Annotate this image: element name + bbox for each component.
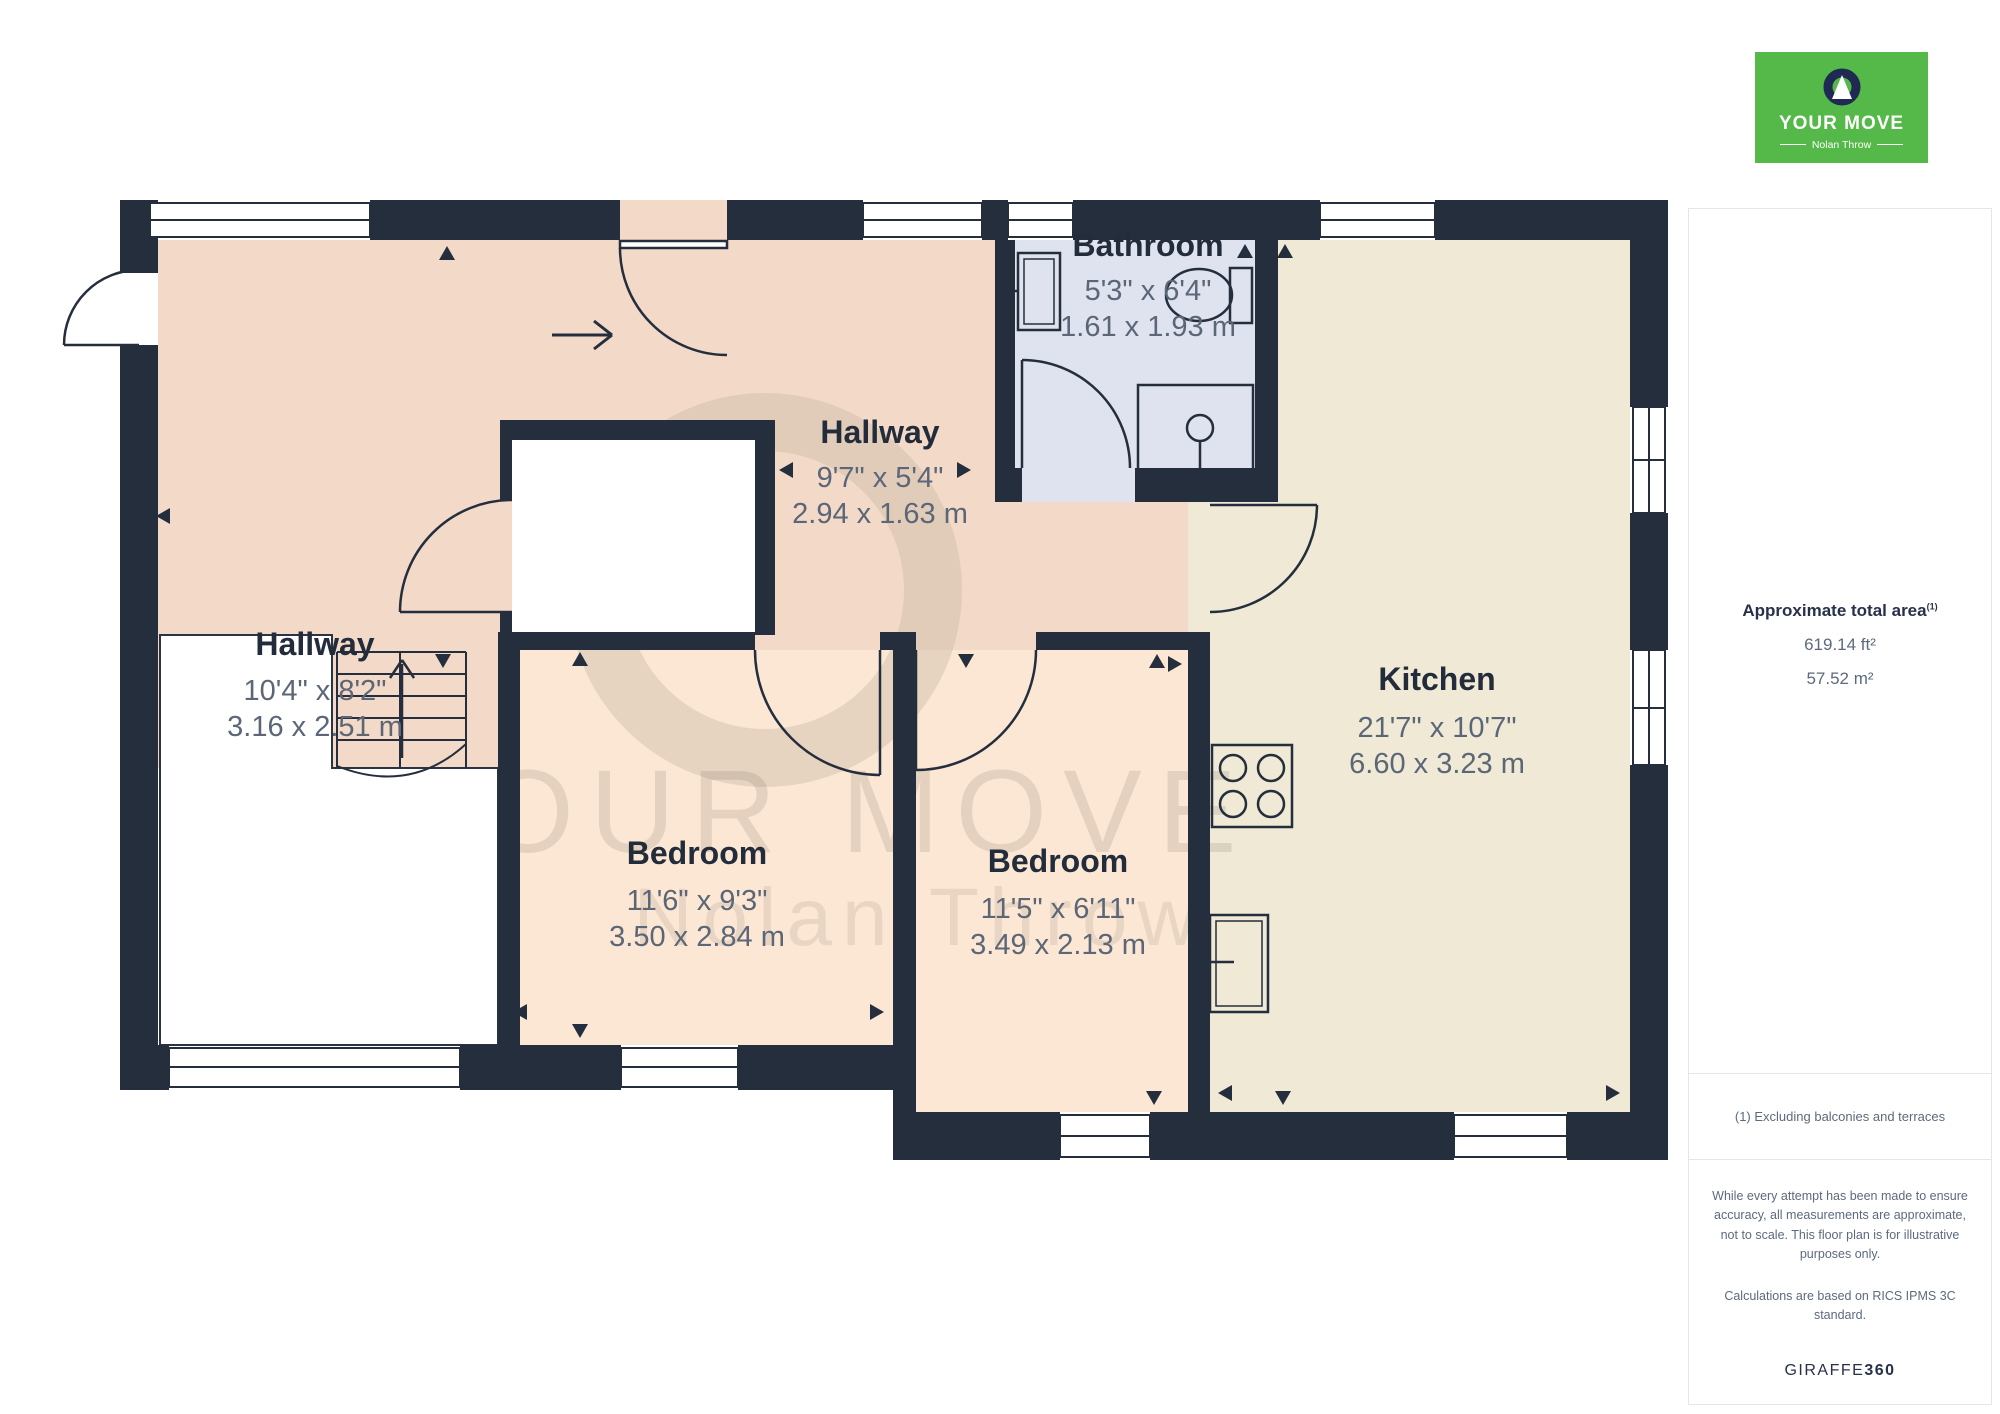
window xyxy=(1633,650,1665,765)
disclaimer-text: While every attempt has been made to ens… xyxy=(1707,1187,1973,1265)
room-label-bedroom1: Bedroom 11'6" x 9'3" 3.50 x 2.84 m xyxy=(609,835,785,953)
window xyxy=(1060,1115,1150,1157)
floorplan-page: YOUR MOVE Nolan Throw xyxy=(0,0,2000,1414)
room-dim-m: 6.60 x 3.23 m xyxy=(1349,748,1525,780)
area-footnote: (1) Excluding balconies and terraces xyxy=(1689,1073,1991,1159)
total-area-block: Approximate total area(1) 619.14 ft² 57.… xyxy=(1689,601,1991,689)
total-area-label: Approximate total area xyxy=(1742,601,1926,620)
room-dim-m: 3.16 x 2.51 m xyxy=(227,711,403,743)
logo-rule-left xyxy=(1780,144,1806,145)
legal-block: While every attempt has been made to ens… xyxy=(1689,1187,1991,1384)
window xyxy=(169,1048,460,1087)
void-square xyxy=(512,440,755,635)
room-dim-ft: 10'4" x 8'2" xyxy=(244,675,387,707)
giraffe360-brand: GIRAFFE360 xyxy=(1689,1359,1991,1384)
room-label-bathroom: Bathroom 5'3" x 6'4" 1.61 x 1.93 m xyxy=(1060,227,1236,343)
room-name: Bedroom xyxy=(627,835,767,871)
room-name: Kitchen xyxy=(1378,661,1495,697)
room-name: Bedroom xyxy=(988,843,1128,879)
window xyxy=(621,1048,738,1087)
logo-brand-text: YOUR MOVE xyxy=(1779,113,1904,135)
window xyxy=(1320,203,1435,237)
window xyxy=(150,203,370,237)
standards-text: Calculations are based on RICS IPMS 3C s… xyxy=(1707,1287,1973,1326)
yourmove-horseshoe-icon xyxy=(1807,65,1877,111)
room-dim-ft: 9'7" x 5'4" xyxy=(817,462,944,494)
room-dim-ft: 11'6" x 9'3" xyxy=(627,885,768,917)
room-dim-m: 3.49 x 2.13 m xyxy=(970,929,1146,961)
exterior-door-opening xyxy=(120,273,158,345)
logo-rule-right xyxy=(1877,144,1903,145)
total-area-m: 57.52 m² xyxy=(1689,669,1991,689)
window xyxy=(1008,203,1073,237)
sidebar-divider xyxy=(1689,1159,1991,1160)
logo-sub-text: Nolan Throw xyxy=(1780,139,1903,151)
window xyxy=(1633,407,1665,513)
room-label-bedroom2: Bedroom 11'5" x 6'11" 3.49 x 2.13 m xyxy=(970,843,1146,961)
kitchen-doorway-floor xyxy=(1188,502,1210,632)
room-dim-ft: 5'3" x 6'4" xyxy=(1085,275,1212,307)
room-dim-m: 3.50 x 2.84 m xyxy=(609,921,785,953)
total-area-footnote-mark: (1) xyxy=(1927,601,1938,611)
room-dim-ft: 21'7" x 10'7" xyxy=(1357,712,1516,744)
room-dim-ft: 11'5" x 6'11" xyxy=(981,893,1136,925)
agency-logo: YOUR MOVE Nolan Throw xyxy=(1755,52,1928,163)
room-dim-m: 2.94 x 1.63 m xyxy=(792,498,968,530)
logo-sub-label: Nolan Throw xyxy=(1812,139,1871,151)
info-sidebar: Approximate total area(1) 619.14 ft² 57.… xyxy=(1688,208,1992,1405)
bathroom-doorway-floor xyxy=(1022,468,1135,502)
room-dim-m: 1.61 x 1.93 m xyxy=(1060,311,1236,343)
giraffe-brand-name: GIRAFFE xyxy=(1784,1362,1864,1379)
room-name: Hallway xyxy=(820,414,939,450)
total-area-ft: 619.14 ft² xyxy=(1689,635,1991,655)
total-area-title: Approximate total area(1) xyxy=(1689,601,1991,621)
room-name: Bathroom xyxy=(1072,227,1223,263)
window xyxy=(1454,1115,1567,1157)
room-name: Hallway xyxy=(255,626,374,662)
giraffe-brand-number: 360 xyxy=(1864,1362,1895,1379)
window xyxy=(863,203,982,237)
hallway-strip-floor xyxy=(995,502,1210,650)
